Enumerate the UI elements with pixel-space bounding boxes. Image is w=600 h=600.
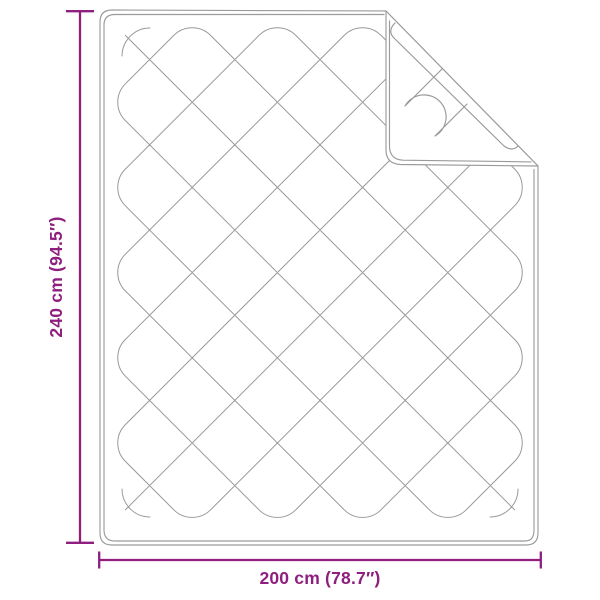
- width-dimension-line: [99, 552, 541, 569]
- folded-corner: [386, 11, 538, 166]
- blanket: [100, 10, 538, 545]
- diagram-canvas: 240 cm (94.5″) 200 cm (78.7″): [0, 0, 600, 600]
- folded-corner-flap: [386, 11, 538, 166]
- height-dimension-line: [66, 11, 94, 543]
- blanket-outline: [100, 10, 538, 545]
- height-dimension-label: 240 cm (94.5″): [46, 216, 66, 337]
- product-dimension-diagram: 240 cm (94.5″) 200 cm (78.7″): [0, 0, 600, 600]
- width-dimension-label: 200 cm (78.7″): [259, 568, 380, 588]
